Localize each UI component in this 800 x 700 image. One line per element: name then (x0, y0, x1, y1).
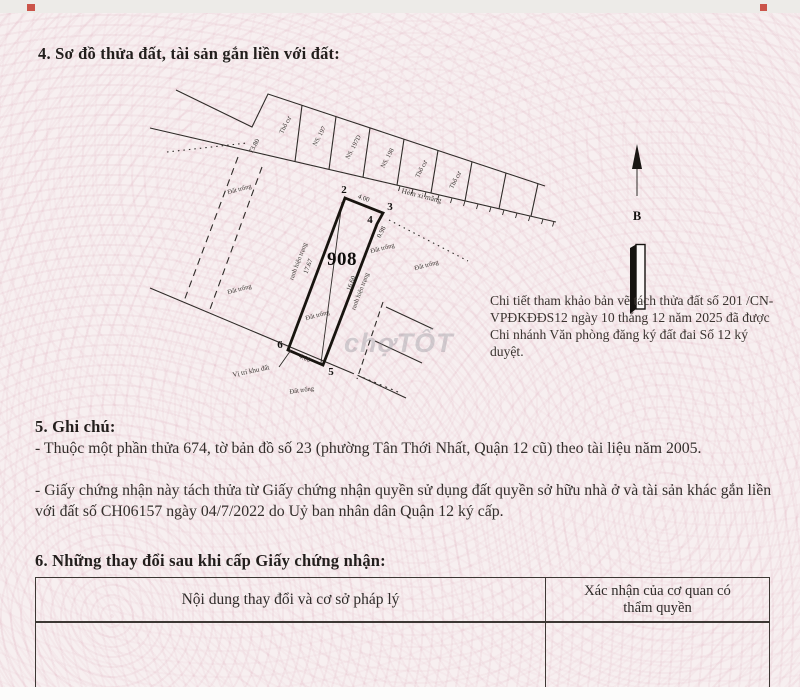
section-6-heading: 6. Những thay đổi sau khi cấp Giấy chứng… (35, 551, 386, 571)
scanned-land-certificate-page: 4. Sơ đồ thửa đất, tài sản gắn liền với … (0, 0, 800, 700)
right-comb-spine (357, 302, 383, 379)
left-strip-dash-1 (184, 157, 238, 301)
corner-label-2: 2 (341, 184, 347, 196)
corner-label-5: 5 (328, 366, 334, 378)
changes-table: Nội dung thay đổi và cơ sở pháp lý Xác n… (35, 577, 770, 688)
section-5-heading: 5. Ghi chú: (35, 417, 116, 437)
edge-length-right: 16.60 (346, 275, 358, 292)
front-plot-label: NS. 197 (312, 125, 329, 148)
front-plot-label: Thổ cư (448, 170, 463, 190)
right-comb-teeth (359, 307, 433, 398)
corner-label-6: 6 (277, 339, 283, 351)
cadastral-diagram: Thổ cư NS. 197 NS. 197D NS. 198 Thổ cư T… (90, 85, 780, 415)
location-label: Vị trí khu đất (232, 363, 270, 379)
corner-label-4: 4 (367, 214, 373, 226)
alley-label: Hẻm xi măng (401, 186, 443, 205)
table-header-confirm: Xác nhận của cơ quan có thẩm quyền (546, 578, 769, 623)
label-dat-trong: Đất trống (305, 309, 331, 322)
photo-edge-top (0, 0, 800, 13)
label-dat-trong: Đất trống (227, 283, 253, 296)
red-mark-left (27, 4, 35, 11)
label-dat-trong: Đất trống (227, 183, 253, 196)
front-plot-label: Thổ cư (414, 159, 429, 179)
table-header-content: Nội dung thay đổi và cơ sở pháp lý (36, 578, 546, 623)
red-mark-right (760, 4, 767, 11)
table-body-confirm-cell (546, 623, 769, 688)
lower-boundary-dotted (352, 373, 398, 392)
north-arrow-head (632, 144, 642, 169)
note-item-2: - Giấy chứng nhận này tách thửa từ Giấy … (35, 481, 779, 523)
label-dat-trong: Đất trống (370, 242, 396, 255)
label-dat-trong: Đất trống (414, 259, 440, 272)
note-item-1: - Thuộc một phần thửa 674, tờ bản đồ số … (35, 439, 777, 460)
front-plot-label: NS. 198 (380, 147, 396, 169)
location-leader (279, 350, 291, 367)
corner-label-3: 3 (387, 201, 393, 213)
right-dotted-boundary (389, 220, 468, 261)
photo-edge-bottom (0, 687, 800, 700)
edge-length-right-short: 0.98 (376, 225, 388, 239)
front-plot-ticks (295, 105, 538, 216)
reference-note: Chi tiết tham khảo bản vẽ tách thửa đất … (490, 292, 782, 361)
plot-inner-line (321, 202, 342, 363)
label-dat-trong: Đất trống (289, 385, 315, 395)
front-plot-label: Thổ cư (278, 115, 293, 135)
table-body-content-cell (36, 623, 546, 688)
north-label: B (633, 209, 641, 223)
front-plot-label: NS. 197D (344, 134, 363, 161)
edge-length-left: 17.67 (303, 258, 315, 275)
section-4-heading: 4. Sơ đồ thửa đất, tài sản gắn liền với … (38, 44, 340, 64)
plot-number: 908 (327, 249, 357, 270)
offset-measurement: 73.80 (248, 137, 262, 154)
